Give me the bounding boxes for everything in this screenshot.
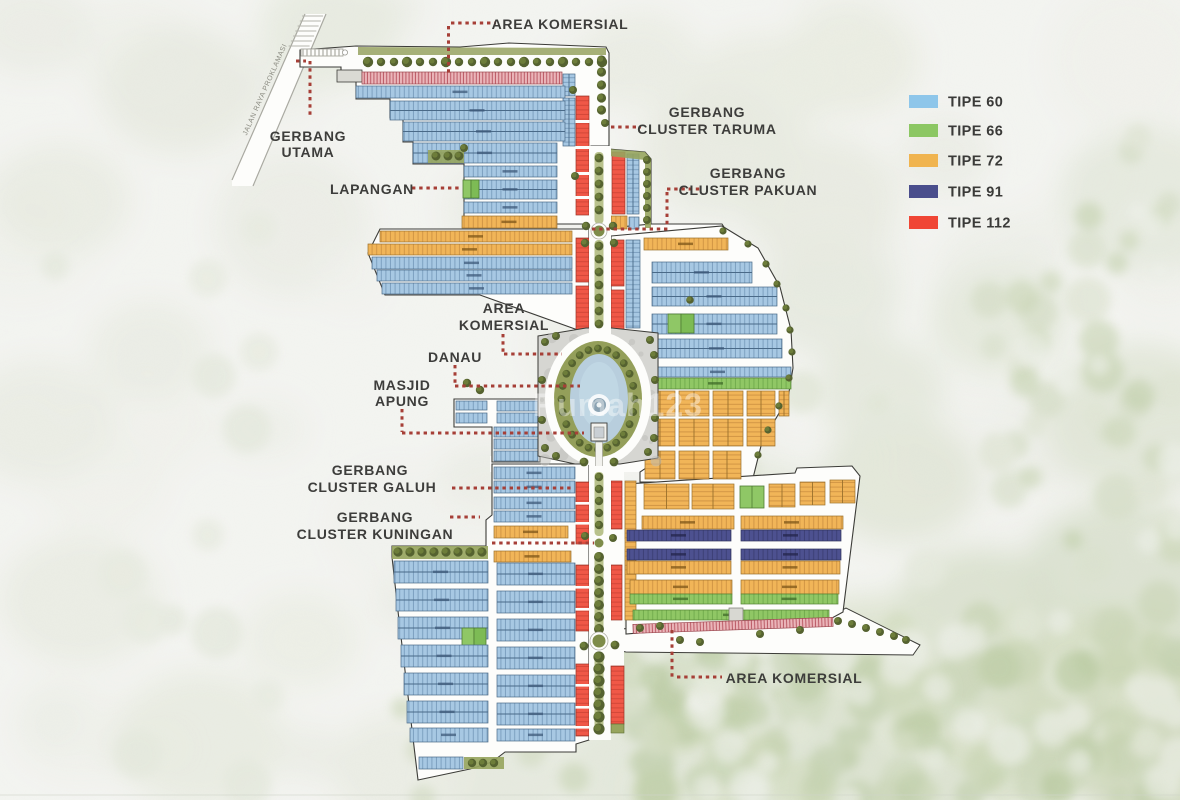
svg-text:Rumah123: Rumah123 xyxy=(533,387,703,423)
svg-text:MASJID: MASJID xyxy=(373,377,430,393)
svg-text:UTAMA: UTAMA xyxy=(281,144,334,160)
svg-text:GERBANG: GERBANG xyxy=(710,165,786,181)
svg-text:TIPE 91: TIPE 91 xyxy=(948,185,1003,201)
svg-text:KOMERSIAL: KOMERSIAL xyxy=(459,317,549,333)
svg-text:AREA: AREA xyxy=(483,300,525,316)
svg-text:LAPANGAN: LAPANGAN xyxy=(330,181,414,197)
svg-text:GERBANG: GERBANG xyxy=(332,462,408,478)
svg-text:AREA KOMERSIAL: AREA KOMERSIAL xyxy=(492,16,629,32)
svg-text:CLUSTER KUNINGAN: CLUSTER KUNINGAN xyxy=(297,526,454,542)
svg-text:GERBANG: GERBANG xyxy=(669,104,745,120)
svg-text:TIPE 112: TIPE 112 xyxy=(948,216,1011,232)
svg-text:DANAU: DANAU xyxy=(428,349,482,365)
svg-text:TIPE 72: TIPE 72 xyxy=(948,154,1003,170)
svg-text:CLUSTER PAKUAN: CLUSTER PAKUAN xyxy=(679,182,818,198)
svg-text:TIPE 60: TIPE 60 xyxy=(948,95,1003,111)
svg-text:TIPE 66: TIPE 66 xyxy=(948,124,1003,140)
svg-text:CLUSTER GALUH: CLUSTER GALUH xyxy=(308,479,437,495)
svg-text:GERBANG: GERBANG xyxy=(337,509,413,525)
svg-text:GERBANG: GERBANG xyxy=(270,128,346,144)
svg-text:AREA KOMERSIAL: AREA KOMERSIAL xyxy=(726,670,863,686)
svg-text:APUNG: APUNG xyxy=(375,393,429,409)
svg-text:CLUSTER TARUMA: CLUSTER TARUMA xyxy=(637,121,776,137)
